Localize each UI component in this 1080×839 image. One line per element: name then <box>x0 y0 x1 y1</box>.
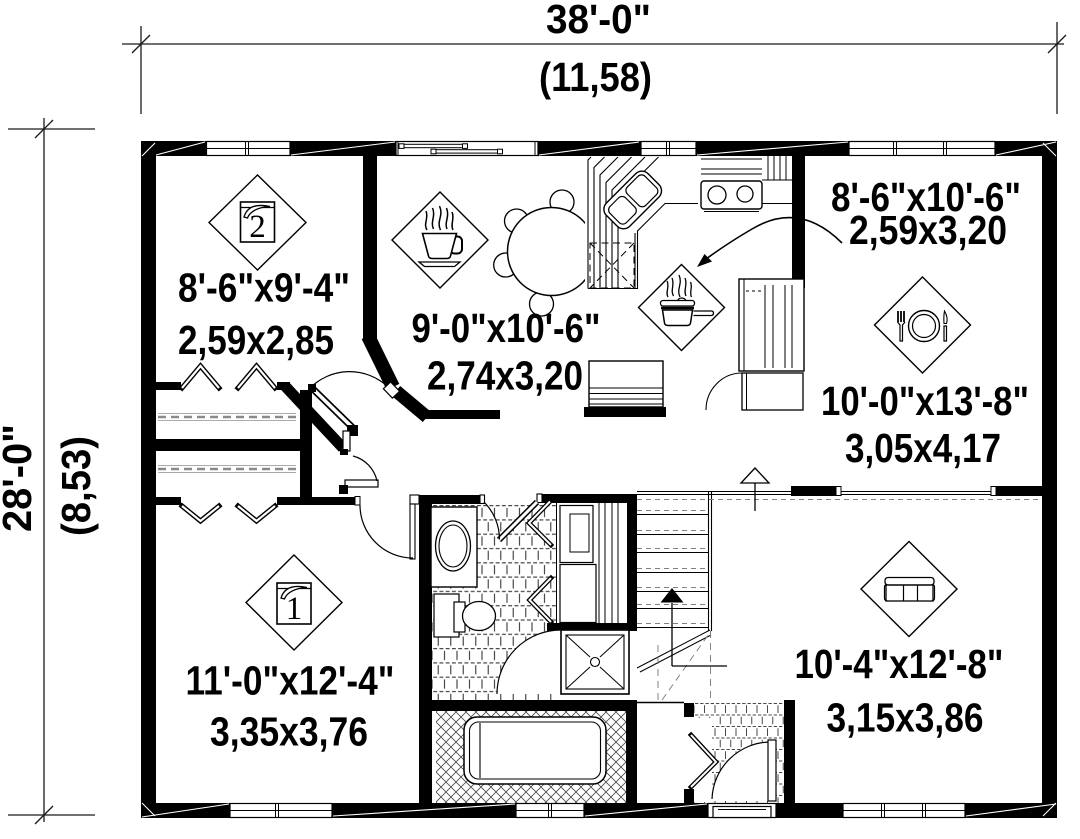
svg-text:(8,53): (8,53) <box>53 436 99 536</box>
svg-text:2: 2 <box>249 209 266 245</box>
svg-text:3,35x3,76: 3,35x3,76 <box>210 709 368 755</box>
svg-text:10'-0"x13'-8": 10'-0"x13'-8" <box>821 378 1029 424</box>
svg-text:38'-0": 38'-0" <box>546 0 651 42</box>
svg-text:3,15x3,86: 3,15x3,86 <box>827 695 984 741</box>
svg-text:9'-0"x10'-6": 9'-0"x10'-6" <box>412 305 601 351</box>
svg-text:1: 1 <box>286 591 303 627</box>
svg-text:(11,58): (11,58) <box>539 54 652 100</box>
svg-text:10'-4"x12'-8": 10'-4"x12'-8" <box>795 641 1004 687</box>
svg-text:2,59x3,20: 2,59x3,20 <box>849 207 1007 253</box>
svg-text:11'-0"x12'-4": 11'-0"x12'-4" <box>186 658 395 704</box>
svg-text:8'-6"x9'-4": 8'-6"x9'-4" <box>178 265 350 311</box>
svg-text:3,05x4,17: 3,05x4,17 <box>845 425 1001 471</box>
svg-text:2,74x3,20: 2,74x3,20 <box>427 353 583 399</box>
svg-text:2,59x2,85: 2,59x2,85 <box>178 317 334 363</box>
svg-text:28'-0": 28'-0" <box>0 424 40 532</box>
